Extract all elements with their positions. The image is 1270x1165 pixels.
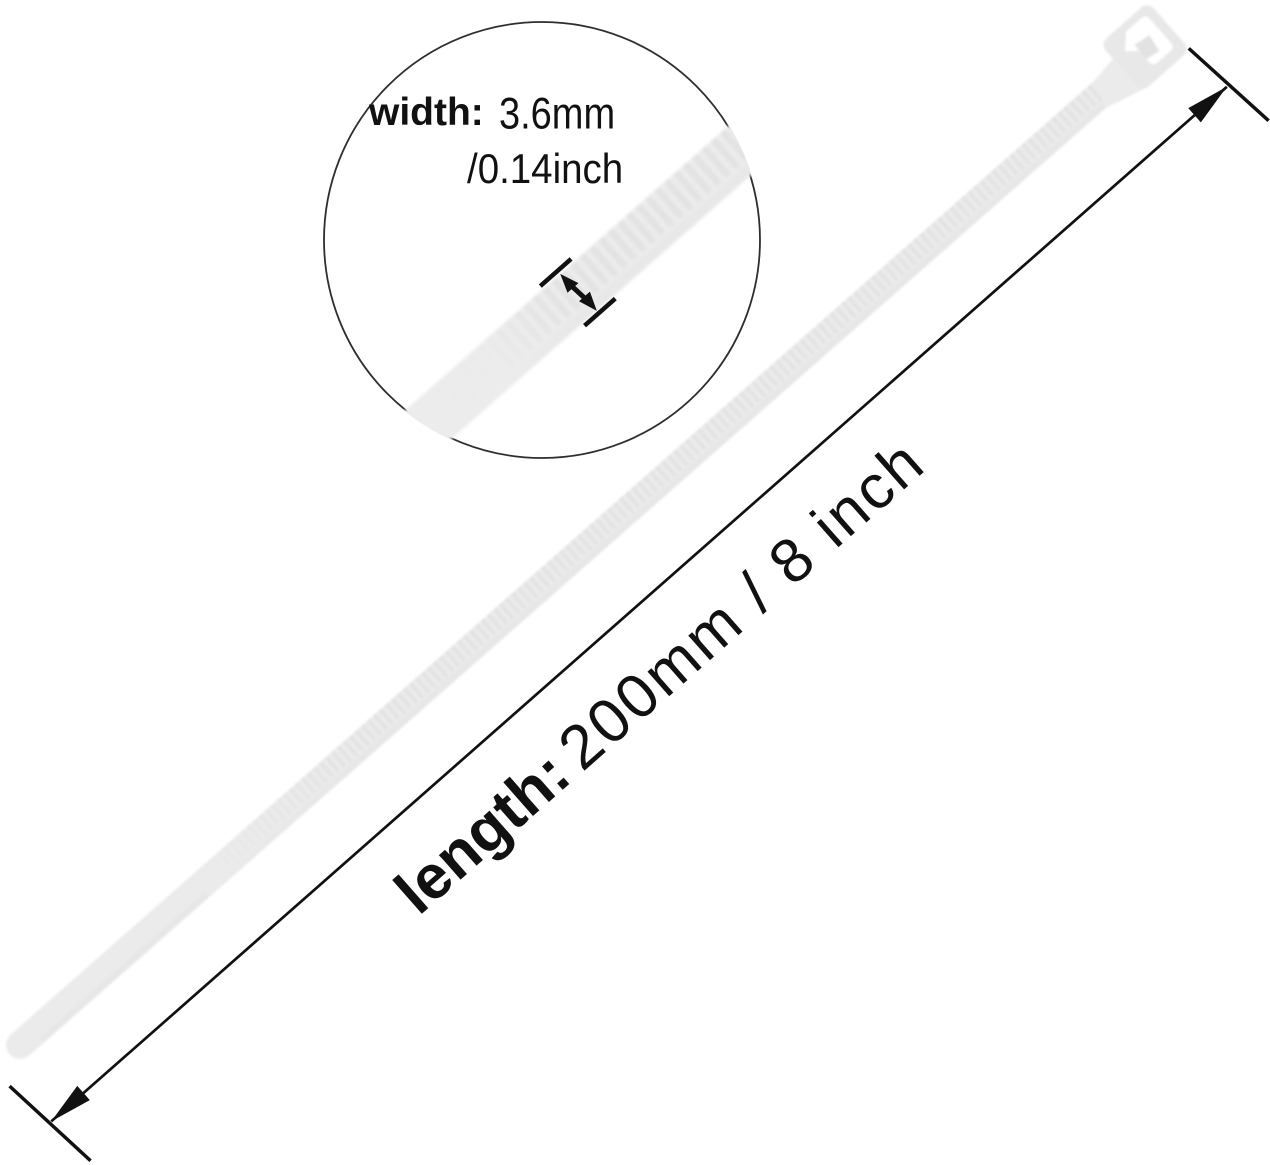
svg-text:/0.14inch: /0.14inch [467,147,623,193]
svg-text:width:: width: [368,91,484,134]
svg-text:3.6mm: 3.6mm [499,88,615,139]
